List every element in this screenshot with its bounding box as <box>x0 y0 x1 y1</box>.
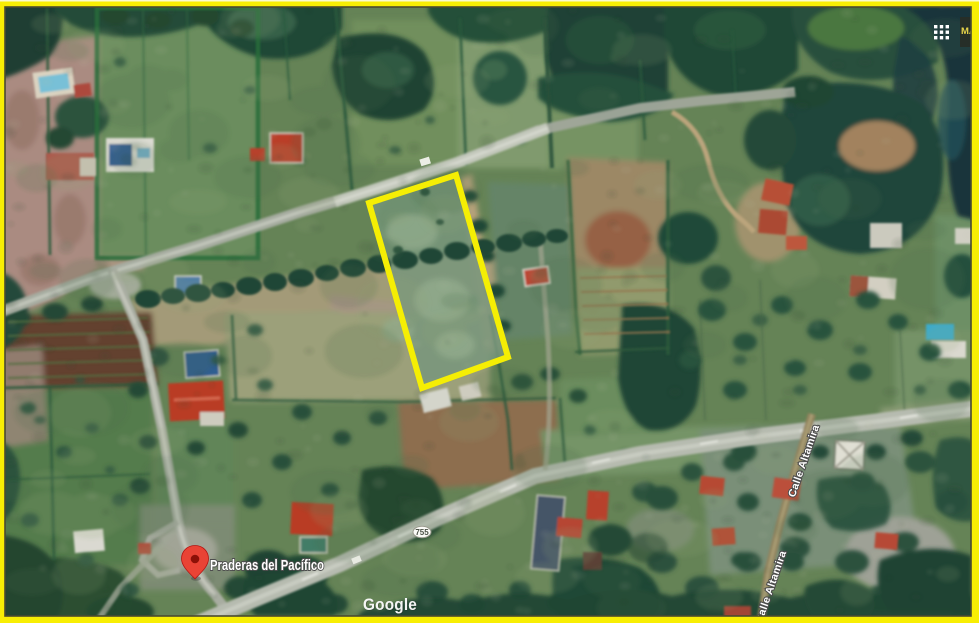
svg-text:Praderas del Pacífico: Praderas del Pacífico <box>210 557 324 574</box>
svg-text:Google: Google <box>363 595 417 614</box>
svg-text:755: 755 <box>415 528 429 537</box>
